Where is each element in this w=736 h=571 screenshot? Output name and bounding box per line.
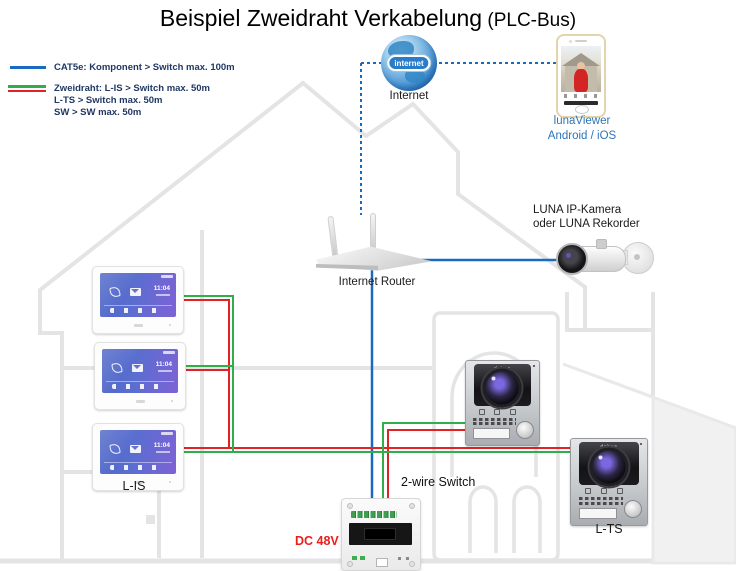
monitor-clock: 11:04 <box>154 442 170 449</box>
router-label: Internet Router <box>318 276 436 288</box>
phone-camera-dot <box>569 40 572 43</box>
monitor-message-icon <box>130 445 141 453</box>
deco-square <box>146 515 155 524</box>
door-station-camera-module: dahua <box>474 364 531 406</box>
monitor-call-icon <box>109 286 121 298</box>
legend-zweidraht-line3: SW > SW max. 50m <box>54 107 235 119</box>
wire-red-monitor1-bus <box>182 300 229 448</box>
monitor-screen-divider <box>104 305 172 306</box>
switch-port <box>376 558 388 567</box>
indoor-monitor-2: 11:04 <box>94 342 186 410</box>
door-station-speaker-grille <box>473 418 515 421</box>
door-station-speaker-grille <box>579 502 623 505</box>
door-station-nameplate <box>579 508 617 519</box>
legend-zweidraht-line1: Zweidraht: L-IS > Switch max. 50m <box>54 83 235 95</box>
monitor-logo-mark <box>136 400 145 403</box>
door-station-nameplate <box>473 428 510 439</box>
monitor-screen: 11:04 <box>100 430 176 474</box>
camera-label: LUNA IP-Kamera oder LUNA Rekorder <box>533 204 640 231</box>
door-station-icons <box>479 409 516 414</box>
monitor-message-icon <box>130 288 141 296</box>
switch-screw <box>409 503 415 509</box>
monitor-statusbar <box>161 275 173 278</box>
monitor-statusbar <box>161 432 173 435</box>
phone-call-buttons <box>564 94 598 98</box>
door-station-lts: dahua <box>570 438 648 526</box>
two-wire-switch-device <box>341 498 421 571</box>
phone-bottom-strip <box>564 101 598 105</box>
door-station-speaker-grille <box>579 497 623 500</box>
camera-label-line2: oder LUNA Rekorder <box>533 218 640 232</box>
door-station-camera-module: dahua <box>579 442 638 485</box>
monitor-clock: 11:04 <box>154 285 170 292</box>
page-title: Beispiel Zweidraht Verkabelung (PLC-Bus) <box>0 5 736 32</box>
monitor-dock-icons <box>110 465 166 470</box>
door-station-speaker-grille <box>473 422 515 425</box>
switch-label: 2-wire Switch <box>401 475 475 489</box>
switch-screw <box>347 503 353 509</box>
internet-label: Internet <box>369 90 449 102</box>
door-station-mic-hole <box>640 443 642 445</box>
monitor-logo-mark <box>134 324 143 327</box>
phone-screen-person <box>574 69 588 92</box>
monitor-statusbar <box>163 351 175 354</box>
door-station-call-button <box>516 421 534 439</box>
legend-row-zweidraht: Zweidraht: L-IS > Switch max. 50m L-TS >… <box>8 83 235 119</box>
monitor-dock-icons <box>112 384 168 389</box>
app-label-line2: Android / iOS <box>526 129 638 144</box>
phone-screen <box>561 46 601 92</box>
legend-swatch-zweidraht-red <box>8 90 46 93</box>
router-antenna-left <box>327 216 338 260</box>
monitor-led <box>171 400 173 402</box>
switch-bottom-dots <box>398 557 410 560</box>
dc-power-label: DC 48V <box>295 534 339 548</box>
title-suffix: (PLC-Bus) <box>482 10 576 31</box>
door-station-lens <box>589 447 628 486</box>
monitor-clock-sub <box>156 294 170 296</box>
monitor-call-icon <box>109 443 121 455</box>
switch-front-panel <box>349 523 412 545</box>
legend: CAT5e: Komponent > Switch max. 100m Zwei… <box>8 62 235 128</box>
legend-zweidraht-line2: L-TS > Switch max. 50m <box>54 95 235 107</box>
camera-label-line1: LUNA IP-Kamera <box>533 204 640 218</box>
switch-status-leds <box>352 556 366 560</box>
switch-terminal-block <box>351 511 397 518</box>
door-station-main: dahua <box>465 360 540 446</box>
switch-screw <box>409 561 415 567</box>
app-label-line1: lunaViewer <box>526 114 638 129</box>
monitor-call-icon <box>111 362 123 374</box>
smartphone-device <box>556 34 606 118</box>
wire-green-monitor1-bus <box>182 296 233 452</box>
camera-lens <box>556 243 588 275</box>
internet-globe-text: internet <box>387 55 430 71</box>
monitor-clock-sub <box>158 370 172 372</box>
monitor-screen: 11:04 <box>102 349 178 393</box>
door-station-lens <box>483 368 522 407</box>
lis-label: L-IS <box>104 479 164 493</box>
monitor-screen: 11:04 <box>100 273 176 317</box>
monitor-message-icon <box>132 364 143 372</box>
lts-label: L-TS <box>580 522 638 536</box>
legend-cat5e-text: CAT5e: Komponent > Switch max. 100m <box>54 62 235 74</box>
house-chimney-right <box>567 292 653 330</box>
legend-swatch-cat5e <box>10 66 46 69</box>
monitor-dock-icons <box>110 308 166 313</box>
internet-router-device <box>310 212 432 274</box>
title-main: Beispiel Zweidraht Verkabelung <box>160 5 482 31</box>
door-station-icons <box>585 488 623 493</box>
legend-swatch-zweidraht-green <box>8 85 46 88</box>
monitor-screen-divider <box>104 462 172 463</box>
phone-speaker <box>575 40 587 42</box>
app-label: lunaViewer Android / iOS <box>526 114 638 144</box>
monitor-clock: 11:04 <box>156 361 172 368</box>
monitor-clock-sub <box>156 451 170 453</box>
camera-antenna-nub <box>596 239 607 249</box>
monitor-led <box>169 324 171 326</box>
diagram-canvas: Beispiel Zweidraht Verkabelung (PLC-Bus)… <box>0 0 736 571</box>
door-station-mic-hole <box>533 365 535 367</box>
indoor-monitor-1: 11:04 <box>92 266 184 334</box>
monitor-led <box>169 481 171 483</box>
door-station-call-button <box>624 500 642 518</box>
ip-camera-device <box>554 236 656 284</box>
internet-globe-icon: internet <box>381 35 437 91</box>
legend-row-cat5e: CAT5e: Komponent > Switch max. 100m <box>8 62 235 74</box>
monitor-screen-divider <box>106 381 174 382</box>
switch-screw <box>347 561 353 567</box>
phone-home-button <box>575 105 589 114</box>
